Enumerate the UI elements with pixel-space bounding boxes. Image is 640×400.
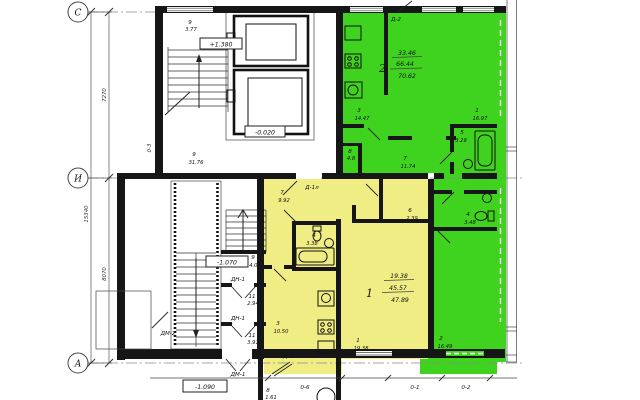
apt2-kitchen-area: 14.47 — [355, 116, 371, 122]
floor-plan-drawing: +1.380 -0.020 -1.070 -1.090 9 3.77 9 31.… — [0, 0, 640, 400]
apartment2-east-wall-highlight — [497, 6, 506, 362]
axis-label-a: А — [74, 360, 82, 370]
apt2-bath-num: 5 — [460, 130, 464, 136]
apt2-storage-num: 8 — [348, 149, 352, 155]
radiator — [337, 104, 343, 114]
apt2-storage-area: 4.8 — [347, 156, 356, 162]
window-north-living2b — [463, 7, 494, 12]
apt2-living-area: 16.97 — [473, 116, 489, 122]
apt1-closet-area: 2.39 — [406, 216, 418, 222]
dim-lower: 8070 — [102, 267, 108, 281]
axis-label-col6: 0-6 — [300, 385, 310, 391]
apt1-bath-area: 3.38 — [306, 241, 318, 247]
upper-staircase — [165, 47, 228, 115]
apartment1-living-area: 19.38 — [390, 273, 408, 280]
apt1-living-area: 19.38 — [354, 346, 370, 352]
room-9-balcony-num: 9 — [188, 20, 192, 26]
door-tag-d2-bottom: Д-2 — [282, 354, 293, 360]
floor-plan-canvas: +1.380 -0.020 -1.070 -1.090 9 3.77 9 31.… — [0, 0, 640, 400]
apt2-bedroom-area: 16.49 — [438, 344, 453, 350]
room-11a-num: 11 — [248, 294, 255, 300]
apt2-bath-area: 3.29 — [455, 138, 467, 144]
west-exterior-wall — [117, 173, 125, 360]
apt2-hall-area: 11.74 — [401, 164, 416, 170]
apt1-closet-num: 6 — [408, 208, 412, 214]
elevator-shaft — [226, 10, 314, 140]
room-entry-num: 8 — [266, 388, 270, 394]
door-tag-dm1: ДМ-1 — [230, 372, 246, 378]
apt2-bedroom-num: 2 — [439, 336, 443, 342]
level-1070: -1.070 — [217, 260, 237, 267]
apartment1-east-wall — [428, 179, 434, 350]
axis-label-col3: 0-3 — [147, 143, 153, 152]
door-tag-dn1-b: ДН-1 — [230, 316, 245, 322]
apt1-living-num: 1 — [356, 338, 360, 344]
door-tag-d2-top: Д-2 — [390, 17, 401, 23]
room-9-corridor-area: 31.76 — [189, 160, 205, 166]
apt1-kitchen-num: 3 — [276, 321, 280, 327]
apartment1-area — [264, 179, 428, 350]
room-11b-num: 11 — [248, 333, 255, 339]
apt1-bath-num: 4 — [312, 233, 316, 239]
corridor-east-wall — [336, 6, 343, 174]
apt2-hall-num: 7 — [403, 156, 407, 162]
apartment2-total-area: 66.44 — [396, 61, 414, 68]
room-9-landing-num: 9 — [251, 255, 255, 261]
service-door-leaf — [152, 312, 168, 328]
dim-total: 15340 — [84, 205, 90, 223]
door-tag-dm2: ДМ-2 — [160, 331, 176, 337]
apartment2-upper-area — [343, 13, 497, 173]
apartment1-full-area: 47.89 — [391, 297, 409, 304]
level-020: -0.020 — [255, 130, 275, 137]
window-south-bedroom2 — [446, 351, 484, 356]
axis-label-col2: 0-2 — [461, 385, 471, 391]
room-9-balcony-area: 3.77 — [185, 27, 197, 33]
axis-label-c: С — [75, 9, 82, 19]
porch-column — [317, 388, 335, 400]
dim-upper: 7270 — [102, 88, 108, 102]
window-north-stair — [167, 7, 213, 12]
bottom-axis-labels: 0-6 0-1 0-2 — [265, 375, 493, 391]
stair-block-west-wall — [155, 6, 163, 173]
apt2-wc-area: 3.48 — [464, 220, 476, 226]
door-tag-dn1-a: ДН-1 — [230, 277, 245, 283]
apartment2-lower-area — [434, 173, 497, 350]
apartment1-total-area: 45.57 — [389, 285, 407, 292]
apt1-hall-area: 9.92 — [278, 198, 290, 204]
room-entry-area: 1.61 — [265, 395, 277, 400]
door-tag-d1l: Д-1л — [304, 185, 319, 191]
apt2-kitchen-num: 3 — [357, 108, 361, 114]
radiator — [337, 150, 343, 160]
balcony-strip — [506, 0, 517, 362]
room-11a-area: 2.94 — [247, 301, 259, 307]
apt1-hall-num: 7 — [280, 190, 284, 196]
room-9-corridor-num: 9 — [192, 152, 196, 158]
level-1380: +1.380 — [210, 42, 233, 49]
apartment2-number: 2 — [378, 62, 386, 75]
apartment2-living-area: 33.46 — [398, 50, 416, 57]
apartment1-number: 1 — [366, 287, 373, 300]
apartment2-full-area: 70.62 — [398, 73, 416, 80]
window-north-living2 — [422, 7, 456, 12]
room-11b-area: 3.91 — [247, 340, 259, 346]
axis-grid: С И А 7270 15340 8070 0-3 — [68, 2, 153, 373]
elevator-2 — [234, 70, 308, 134]
apt1-kitchen-area: 10.50 — [274, 329, 290, 335]
level-1090: -1.090 — [195, 384, 215, 391]
axis-label-col1: 0-1 — [410, 385, 419, 391]
axis-label-i: И — [73, 175, 82, 185]
apt2-living-num: 1 — [475, 108, 479, 114]
window-north-kitchen2 — [350, 7, 383, 12]
room-9-landing-area: 4.07 — [249, 263, 261, 269]
apt2-wc-num: 4 — [466, 212, 470, 218]
